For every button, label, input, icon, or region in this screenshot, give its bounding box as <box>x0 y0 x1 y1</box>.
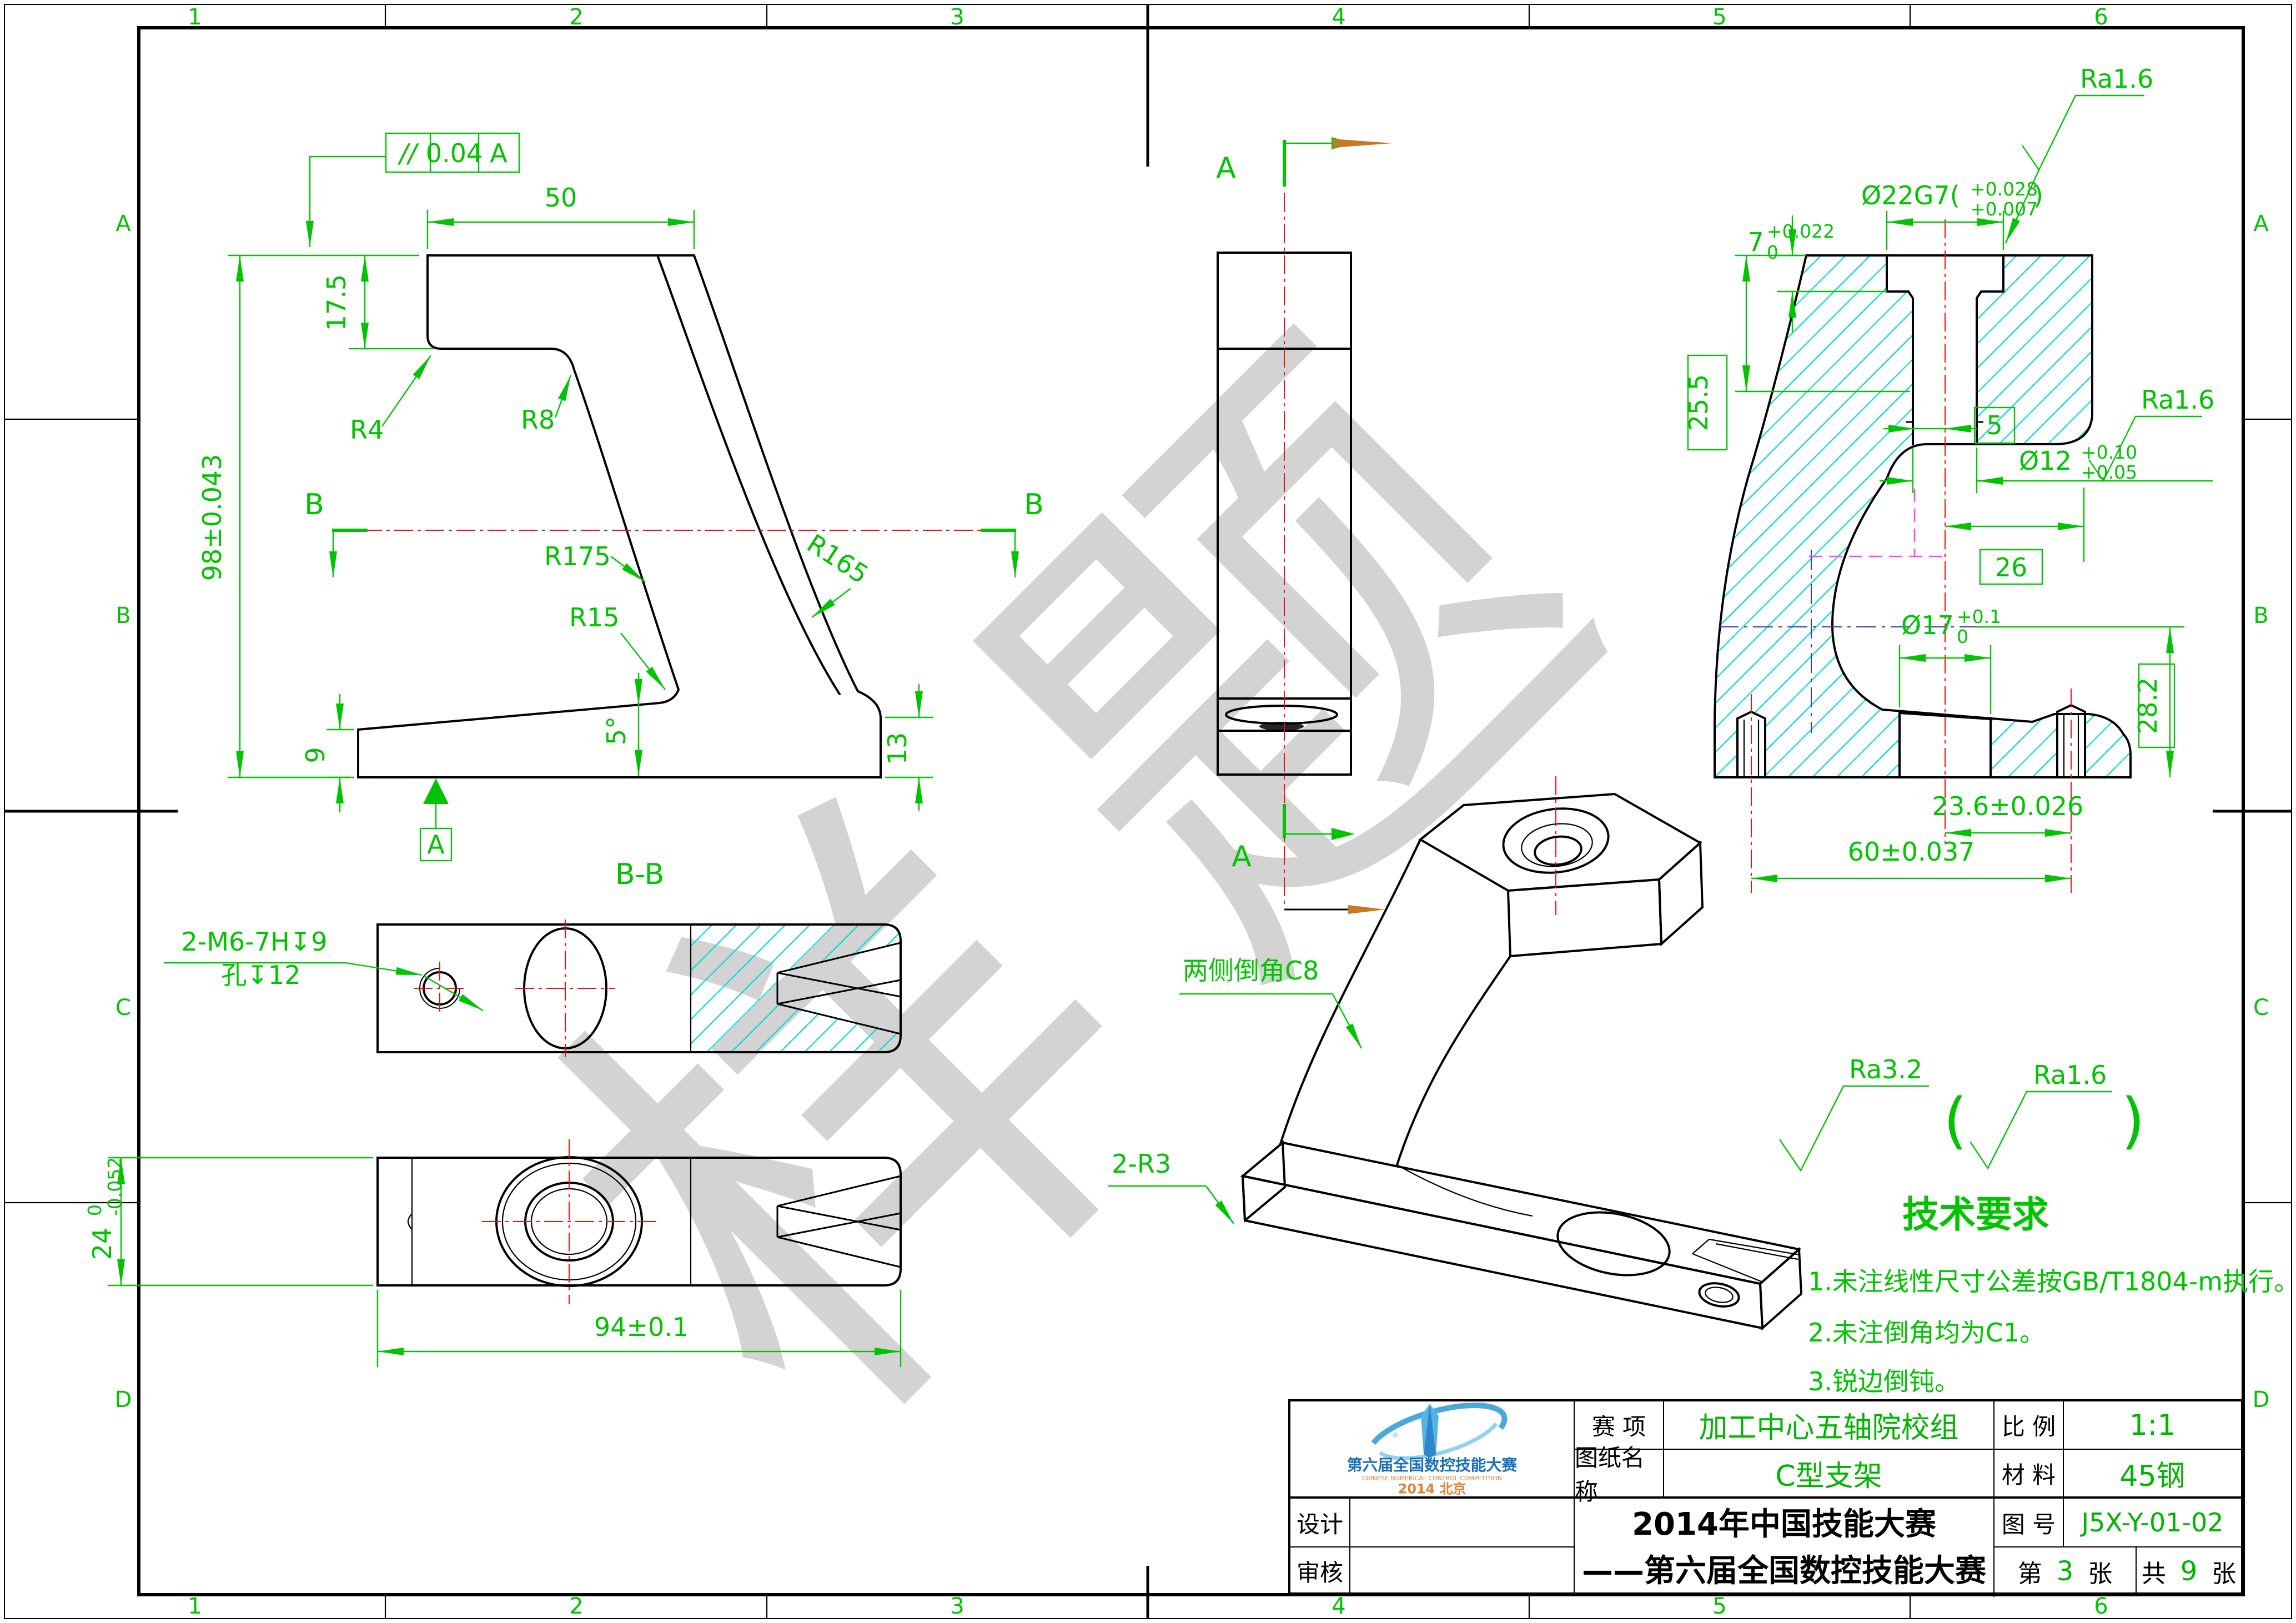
dim-7-tol-u: +0.022 <box>1767 220 1835 242</box>
iso-r3-label: 2-R3 <box>1112 1149 1171 1179</box>
value-event: 加工中心五轴院校组 <box>1664 1401 1994 1450</box>
dim-24-main: 24 <box>87 1228 117 1260</box>
section-bb-title: B-B <box>615 858 664 891</box>
dim-o17-tol-u: +0.1 <box>1957 606 2001 627</box>
zone-col-1b: 1 <box>188 1594 202 1619</box>
zone-col-6b: 6 <box>2094 1594 2108 1619</box>
zone-col-6: 6 <box>2094 4 2108 30</box>
dim-28-2: 28.2 <box>2133 677 2163 734</box>
front-view: B B // 0.04 A 50 17.5 98±0.043 R4 R8 R17… <box>197 133 1044 861</box>
total-unit: 张 <box>2212 1554 2236 1589</box>
logo-line-1: 第六届全国数控技能大赛 <box>1347 1456 1518 1474</box>
value-drawing-name: C型支架 <box>1664 1450 1994 1499</box>
zone-col-2: 2 <box>569 4 583 30</box>
label-audit: 审核 <box>1290 1547 1350 1595</box>
zone-col-3b: 3 <box>950 1594 964 1619</box>
dim-r175: R175 <box>544 541 611 571</box>
dim-o12-tol-l: +0.05 <box>2081 461 2137 483</box>
dim-o12-main: Ø12 <box>2019 446 2072 476</box>
audit-blank-cell <box>1350 1547 1575 1595</box>
dim-r15: R15 <box>569 602 620 632</box>
datum-a-flag: A <box>420 778 451 861</box>
dim-r8: R8 <box>521 405 555 435</box>
logo-graphic <box>1373 1404 1504 1458</box>
section-label-a-top: A <box>1216 152 1236 185</box>
dim-17-5: 17.5 <box>321 274 351 331</box>
tolerance-datum: A <box>490 138 508 168</box>
tech-req-item-1: 1.未注线性尺寸公差按GB/T1804-m执行。 <box>1808 1267 2296 1297</box>
dim-9: 9 <box>300 747 330 763</box>
sheet-unit: 张 <box>2088 1554 2112 1589</box>
zone-row-a-r: A <box>2253 211 2269 237</box>
dim-25-5: 25.5 <box>1684 374 1714 431</box>
dim-o22-main: Ø22G7( <box>1861 180 1960 210</box>
tech-req-title: 技术要求 <box>1902 1193 2049 1236</box>
dim-98: 98±0.043 <box>197 454 227 581</box>
dim-o22-tol-l: +0.007 <box>1970 198 2038 220</box>
paren-left: ( <box>1943 1085 1967 1156</box>
zone-col-5b: 5 <box>1712 1594 1726 1619</box>
dim-5-boxed: 5 <box>1986 410 2002 440</box>
dim-r165: R165 <box>802 528 874 590</box>
value-drawing-no: J5X-Y-01-02 <box>2064 1499 2241 1547</box>
drawing-sheet: 样 题 1 2 3 4 5 6 1 2 3 4 5 6 A B C D <box>0 0 2296 1623</box>
ra16-mid-label: Ra1.6 <box>2141 385 2214 415</box>
m6-callout-line1: 2-M6-7H↧9 <box>181 927 327 957</box>
sheet-number: 3 <box>2057 1556 2074 1587</box>
parallelism-tolerance: // 0.04 A <box>310 133 519 247</box>
sheet-total-cell: 共 9 张 <box>2137 1547 2241 1595</box>
ra16-paren-label: Ra1.6 <box>2033 1060 2107 1090</box>
dim-o17-tol-l: 0 <box>1957 626 1968 647</box>
dim-24-group: 24 0 -0.052 <box>84 1157 125 1260</box>
ra32-label: Ra3.2 <box>1849 1054 1922 1084</box>
section-b-arrows: B B <box>304 488 1044 577</box>
zone-col-2b: 2 <box>569 1594 583 1619</box>
label-drawing-no: 图 号 <box>1994 1499 2064 1547</box>
zone-col-3: 3 <box>950 4 964 30</box>
ra16-top-label: Ra1.6 <box>2080 64 2153 94</box>
competition-title-line2: ——第六届全国数控技能大赛 <box>1582 1548 1986 1595</box>
zone-col-1: 1 <box>188 4 202 30</box>
competition-title-cell: 2014年中国技能大赛 ——第六届全国数控技能大赛 <box>1575 1499 1994 1597</box>
section-label-b-right: B <box>1024 488 1044 521</box>
dim-7-main: 7 <box>1747 227 1764 257</box>
tolerance-value: 0.04 <box>426 138 483 168</box>
zone-row-d: D <box>115 1387 132 1413</box>
dim-13: 13 <box>882 732 912 765</box>
tech-req-item-2: 2.未注倒角均为C1。 <box>1808 1318 2045 1348</box>
zone-row-b: B <box>115 603 130 629</box>
label-material: 材 料 <box>1994 1450 2064 1499</box>
m6-callout-line2: 孔↧12 <box>221 960 300 990</box>
section-label-b-left: B <box>304 488 324 521</box>
zone-row-c: C <box>115 995 131 1021</box>
total-prefix: 共 <box>2142 1554 2166 1589</box>
dim-60: 60±0.037 <box>1848 837 1975 867</box>
dim-o22-tol-u: +0.028 <box>1970 178 2038 200</box>
zone-row-a: A <box>115 211 131 237</box>
logo-cell: 第六届全国数控技能大赛 CHINESE NUMERICAL CONTROL CO… <box>1290 1401 1575 1499</box>
section-a-arrow-top: A <box>1216 137 1393 187</box>
zone-row-c-r: C <box>2253 995 2269 1021</box>
zone-col-5: 5 <box>1712 4 1726 30</box>
dim-23-6: 23.6±0.026 <box>1932 791 2084 821</box>
surface-finish-general: Ra3.2 ( Ra1.6 ) <box>1780 1054 2145 1170</box>
iso-chamfer-label: 两侧倒角C8 <box>1183 956 1319 986</box>
design-blank-cell <box>1350 1499 1575 1547</box>
dim-7-tol-l: 0 <box>1767 242 1778 263</box>
tech-req-item-3: 3.锐边倒钝。 <box>1808 1366 1960 1396</box>
dim-o17-main: Ø17 <box>1901 610 1954 640</box>
sheet-number-cell: 第 3 张 <box>1994 1547 2137 1595</box>
label-scale: 比 例 <box>1994 1401 2064 1450</box>
competition-title-line1: 2014年中国技能大赛 <box>1632 1501 1936 1548</box>
dim-r4: R4 <box>350 415 384 445</box>
dim-5deg: 5° <box>601 716 631 745</box>
zone-row-b-r: B <box>2253 603 2268 629</box>
dim-24-tol-l: -0.052 <box>104 1157 125 1216</box>
zone-col-4b: 4 <box>1332 1594 1345 1619</box>
technical-requirements: Ra3.2 ( Ra1.6 ) 技术要求 1.未注线性尺寸公差按GB/T1804… <box>1780 1054 2296 1396</box>
dim-o22-close: ) <box>2033 180 2043 210</box>
total-number: 9 <box>2181 1556 2198 1587</box>
label-drawing-name: 图纸名称 <box>1575 1450 1664 1499</box>
zone-row-d-r: D <box>2253 1387 2270 1413</box>
competition-logo: 第六届全国数控技能大赛 CHINESE NUMERICAL CONTROL CO… <box>1290 1401 1574 1496</box>
tolerance-symbol: // <box>398 138 419 168</box>
dim-26-boxed: 26 <box>1995 552 2028 582</box>
dim-24-tol-u: 0 <box>84 1204 105 1216</box>
dim-94: 94±0.1 <box>594 1312 689 1342</box>
datum-a-label: A <box>427 830 445 860</box>
zone-col-4: 4 <box>1332 4 1345 30</box>
title-block: 第六届全国数控技能大赛 CHINESE NUMERICAL CONTROL CO… <box>1288 1399 2243 1595</box>
section-label-a-bottom: A <box>1232 840 1252 873</box>
paren-right: ) <box>2121 1085 2145 1156</box>
dim-50: 50 <box>545 183 577 213</box>
drawing-canvas: 样 题 1 2 3 4 5 6 1 2 3 4 5 6 A B C D <box>0 0 2296 1623</box>
section-aa-view: Ra1.6 Ø22G7( +0.028 +0.007 ) 7 +0.022 0 … <box>1684 64 2214 893</box>
logo-line-3: 2014 北京 <box>1398 1481 1466 1496</box>
sheet-prefix: 第 <box>2018 1554 2042 1589</box>
value-scale: 1:1 <box>2064 1401 2241 1450</box>
value-material: 45钢 <box>2064 1450 2241 1499</box>
label-design: 设计 <box>1290 1499 1350 1547</box>
